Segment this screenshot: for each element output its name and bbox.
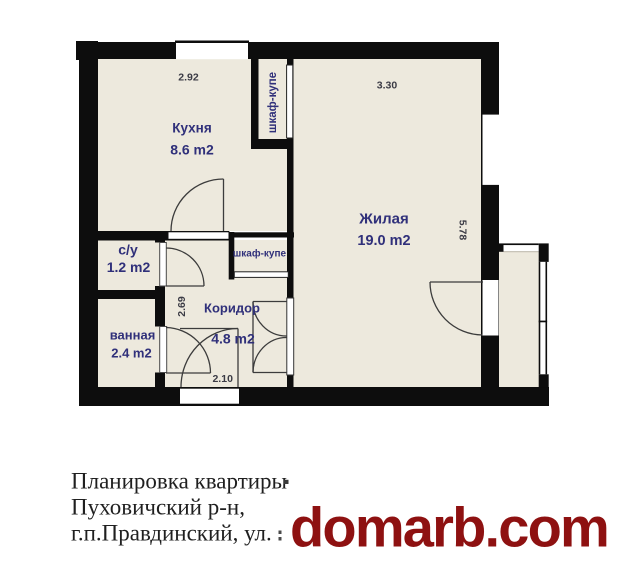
svg-text:4.8 m2: 4.8 m2 (211, 331, 255, 347)
svg-text:2.4 m2: 2.4 m2 (111, 346, 151, 361)
svg-text:2.92: 2.92 (178, 72, 199, 84)
svg-text:с/у: с/у (118, 242, 138, 258)
svg-text:Планировка квартиры: Планировка квартиры (71, 469, 287, 494)
svg-text:3.30: 3.30 (377, 80, 398, 92)
svg-text:5.78: 5.78 (457, 220, 469, 241)
svg-text:2.69: 2.69 (176, 296, 188, 317)
svg-text:ванная: ванная (110, 328, 156, 343)
svg-text:8.6 m2: 8.6 m2 (170, 142, 214, 158)
svg-text:шкаф-купе: шкаф-купе (233, 248, 287, 260)
svg-text:domarb.com: domarb.com (290, 495, 608, 558)
svg-text:1.2 m2: 1.2 m2 (107, 259, 151, 275)
svg-text:шкаф-купе: шкаф-купе (267, 72, 279, 133)
svg-text:Пуховичский р-н,: Пуховичский р-н, (71, 495, 245, 520)
svg-text:19.0 m2: 19.0 m2 (357, 233, 410, 249)
svg-text:Жилая: Жилая (358, 211, 408, 228)
svg-text:Кухня: Кухня (172, 121, 211, 136)
svg-text:Коридор: Коридор (204, 301, 260, 316)
svg-text:2.10: 2.10 (212, 373, 233, 385)
svg-text:г.п.Правдинский, ул.: г.п.Правдинский, ул. (71, 521, 272, 546)
